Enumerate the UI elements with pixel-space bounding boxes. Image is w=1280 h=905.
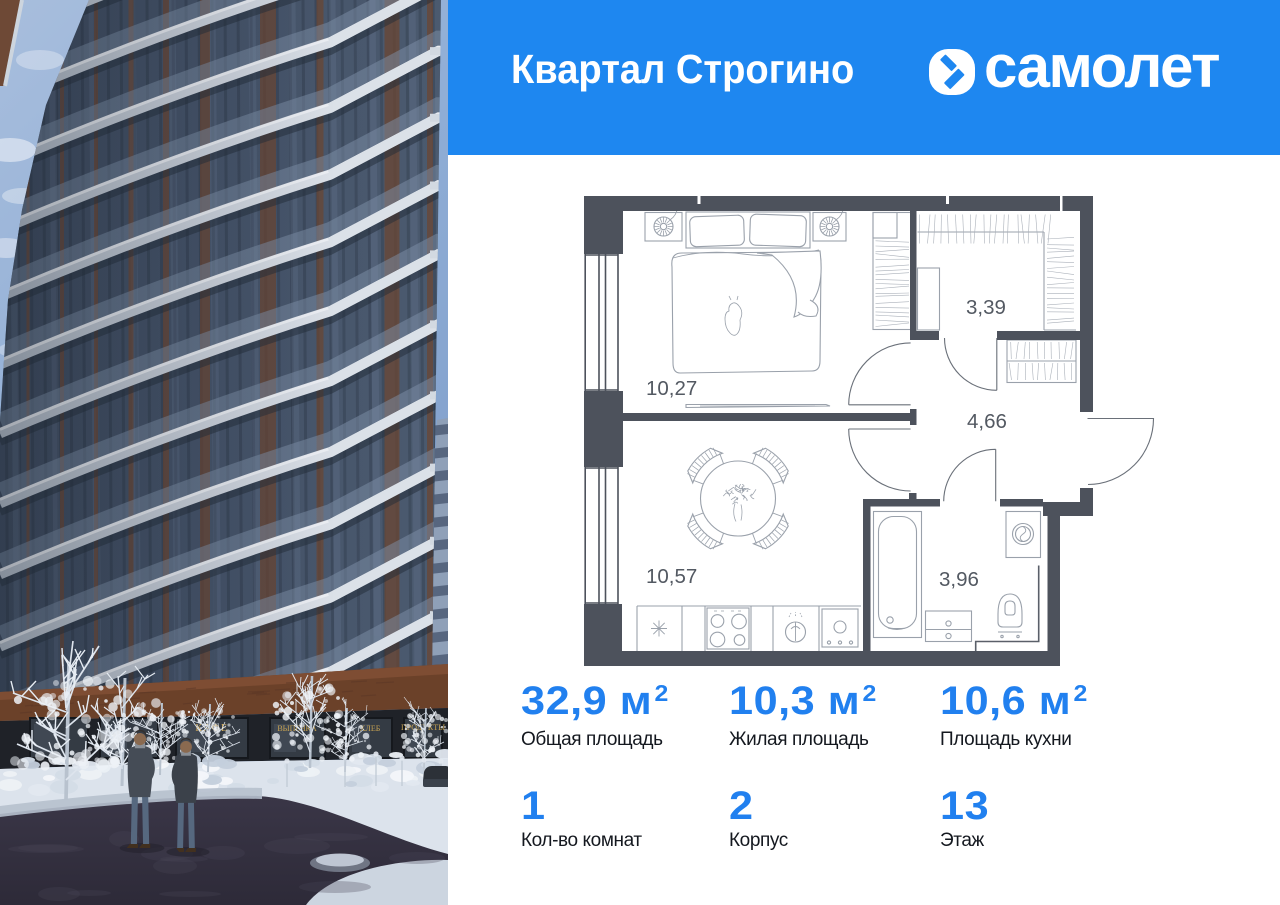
svg-text:10,27: 10,27: [646, 377, 697, 400]
svg-text:10,57: 10,57: [646, 565, 697, 588]
svg-text:3,39: 3,39: [966, 296, 1006, 319]
svg-text:4,66: 4,66: [967, 410, 1007, 433]
svg-text:3,96: 3,96: [939, 568, 979, 591]
